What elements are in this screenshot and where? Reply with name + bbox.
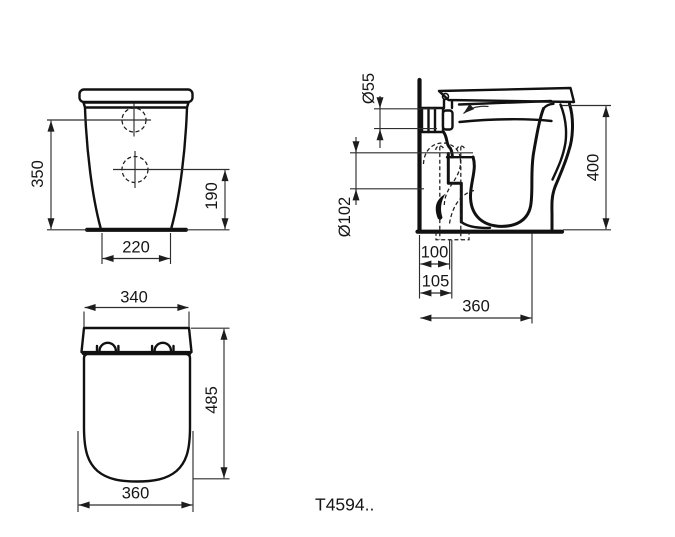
- rim-flow-arrow-icon: [464, 106, 489, 113]
- dim-label-220: 220: [122, 239, 150, 257]
- dim-label-485: 485: [203, 386, 221, 414]
- body-right-edge: [172, 108, 188, 228]
- technical-drawing-page: 350 190 220: [0, 0, 675, 537]
- dim-label-100: 100: [421, 244, 449, 262]
- toilet-dimension-drawing: 350 190 220: [0, 0, 675, 537]
- bowl-profile: [444, 104, 573, 230]
- dim-label-105: 105: [422, 273, 450, 291]
- front-view-dimensions: 350 190 220: [29, 120, 230, 264]
- dim-label-400: 400: [584, 154, 602, 182]
- side-view: [418, 80, 575, 240]
- dim-label-340: 340: [120, 289, 148, 307]
- dim-label-seat-360: 360: [122, 484, 150, 502]
- seat-cover-outline: [84, 354, 190, 482]
- body-left-edge: [85, 108, 101, 228]
- cistern-lid-front: [80, 90, 193, 103]
- dim-label-350: 350: [29, 160, 47, 188]
- water-line: [460, 119, 552, 122]
- dim-label-depth-360: 360: [462, 297, 490, 315]
- seat-plan-view: [82, 328, 192, 482]
- seat-hinges: [97, 343, 174, 351]
- dim-label-inlet-diameter: Ø55: [360, 73, 378, 104]
- flush-direction-arrow-icon: [436, 194, 446, 220]
- seat-lid-side: [439, 88, 574, 108]
- dim-label-outlet-diameter: Ø102: [336, 197, 354, 237]
- dim-label-190: 190: [203, 182, 221, 210]
- product-code: T4594..: [315, 495, 374, 515]
- seat-edge-front: [84, 103, 189, 108]
- front-view: [80, 90, 193, 230]
- sump-step: [448, 154, 461, 223]
